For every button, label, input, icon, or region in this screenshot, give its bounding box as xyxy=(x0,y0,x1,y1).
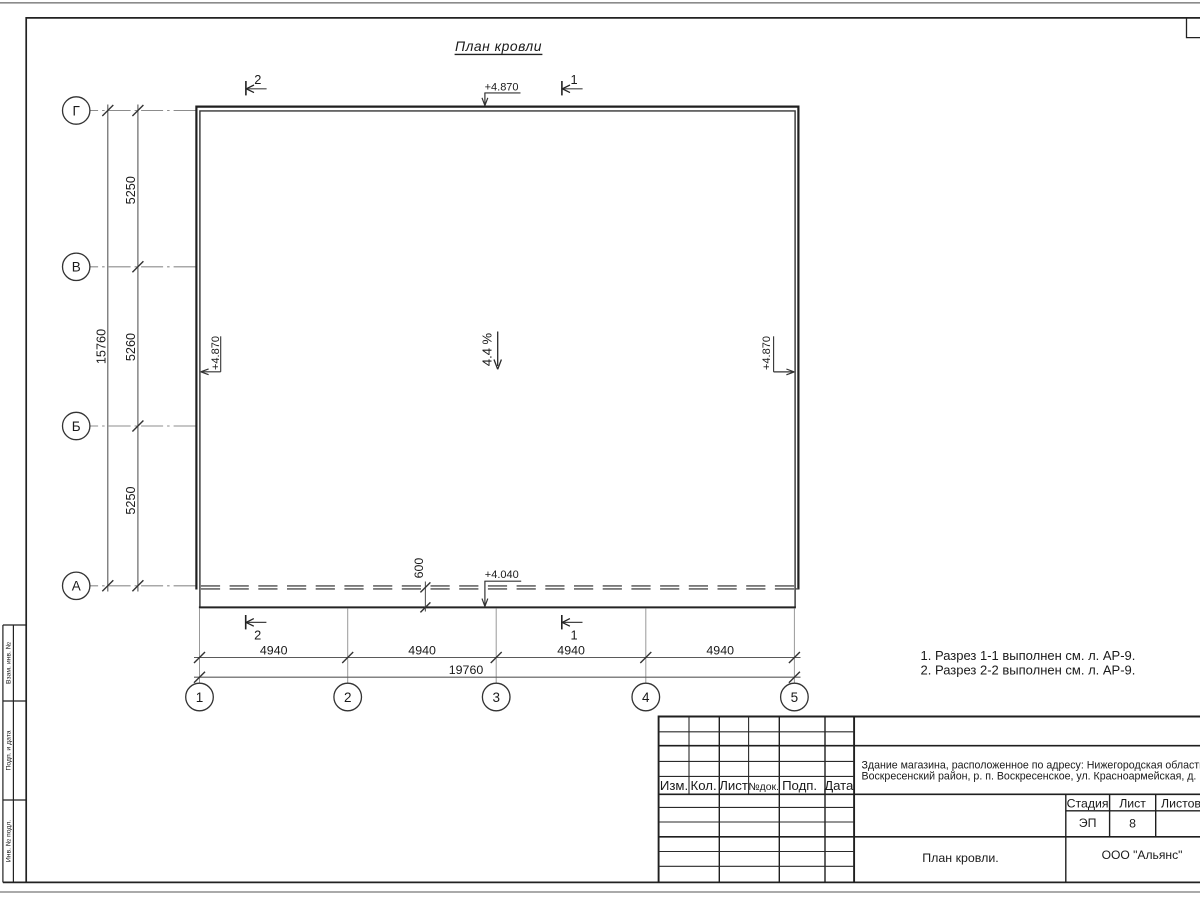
svg-text:В: В xyxy=(72,260,81,275)
svg-text:ЭП: ЭП xyxy=(1079,816,1097,830)
svg-text:5250: 5250 xyxy=(124,486,138,514)
svg-text:1: 1 xyxy=(570,627,577,642)
svg-text:+4.870: +4.870 xyxy=(485,81,519,93)
svg-text:4940: 4940 xyxy=(260,644,288,658)
svg-text:План кровли: План кровли xyxy=(455,38,542,54)
svg-text:3: 3 xyxy=(492,690,500,705)
svg-text:№док.: №док. xyxy=(748,782,778,793)
svg-text:2: 2 xyxy=(254,72,261,87)
svg-text:15760: 15760 xyxy=(95,329,109,364)
svg-text:1: 1 xyxy=(196,690,204,705)
svg-text:600: 600 xyxy=(412,558,426,579)
svg-text:2: 2 xyxy=(254,627,261,642)
svg-text:Кол.: Кол. xyxy=(691,778,717,793)
svg-text:1: 1 xyxy=(570,72,577,87)
svg-text:Подп. и дата: Подп. и дата xyxy=(6,730,13,770)
svg-text:План кровли.: План кровли. xyxy=(922,851,998,865)
svg-text:4940: 4940 xyxy=(408,644,436,658)
svg-text:ООО "Альянс": ООО "Альянс" xyxy=(1102,848,1183,862)
svg-text:+4.870: +4.870 xyxy=(761,336,773,370)
svg-text:Стадия: Стадия xyxy=(1067,797,1109,811)
svg-text:Б: Б xyxy=(72,419,81,434)
svg-text:Лист: Лист xyxy=(719,778,748,793)
svg-text:А: А xyxy=(72,579,81,594)
svg-text:5250: 5250 xyxy=(124,176,138,204)
svg-text:5260: 5260 xyxy=(124,333,138,361)
svg-text:Подп.: Подп. xyxy=(782,778,817,793)
svg-text:Листов: Листов xyxy=(1161,797,1200,811)
svg-text:4940: 4940 xyxy=(557,644,585,658)
svg-text:4940: 4940 xyxy=(706,644,734,658)
svg-text:Дата: Дата xyxy=(824,778,854,793)
svg-text:Инв. № подл.: Инв. № подл. xyxy=(6,820,13,862)
svg-text:2: 2 xyxy=(344,690,352,705)
svg-text:Лист: Лист xyxy=(1119,797,1146,811)
svg-text:8: 8 xyxy=(1129,817,1136,831)
svg-text:Воскресенский район, р. п. Вос: Воскресенский район, р. п. Воскресенское… xyxy=(862,770,1200,782)
svg-text:Изм.: Изм. xyxy=(660,778,688,793)
svg-text:Г: Г xyxy=(73,103,81,118)
svg-text:1. Разрез 1-1 выполнен см. л.: 1. Разрез 1-1 выполнен см. л. АР-9. xyxy=(921,648,1136,663)
svg-text:4.4 %: 4.4 % xyxy=(480,332,495,366)
svg-text:Взам. инв. №: Взам. инв. № xyxy=(6,642,13,684)
svg-text:+4.040: +4.040 xyxy=(485,569,519,581)
svg-text:4: 4 xyxy=(642,690,650,705)
svg-text:2. Разрез 2-2 выполнен см. л.: 2. Разрез 2-2 выполнен см. л. АР-9. xyxy=(921,662,1136,677)
svg-text:5: 5 xyxy=(791,690,799,705)
svg-text:19760: 19760 xyxy=(449,663,484,677)
